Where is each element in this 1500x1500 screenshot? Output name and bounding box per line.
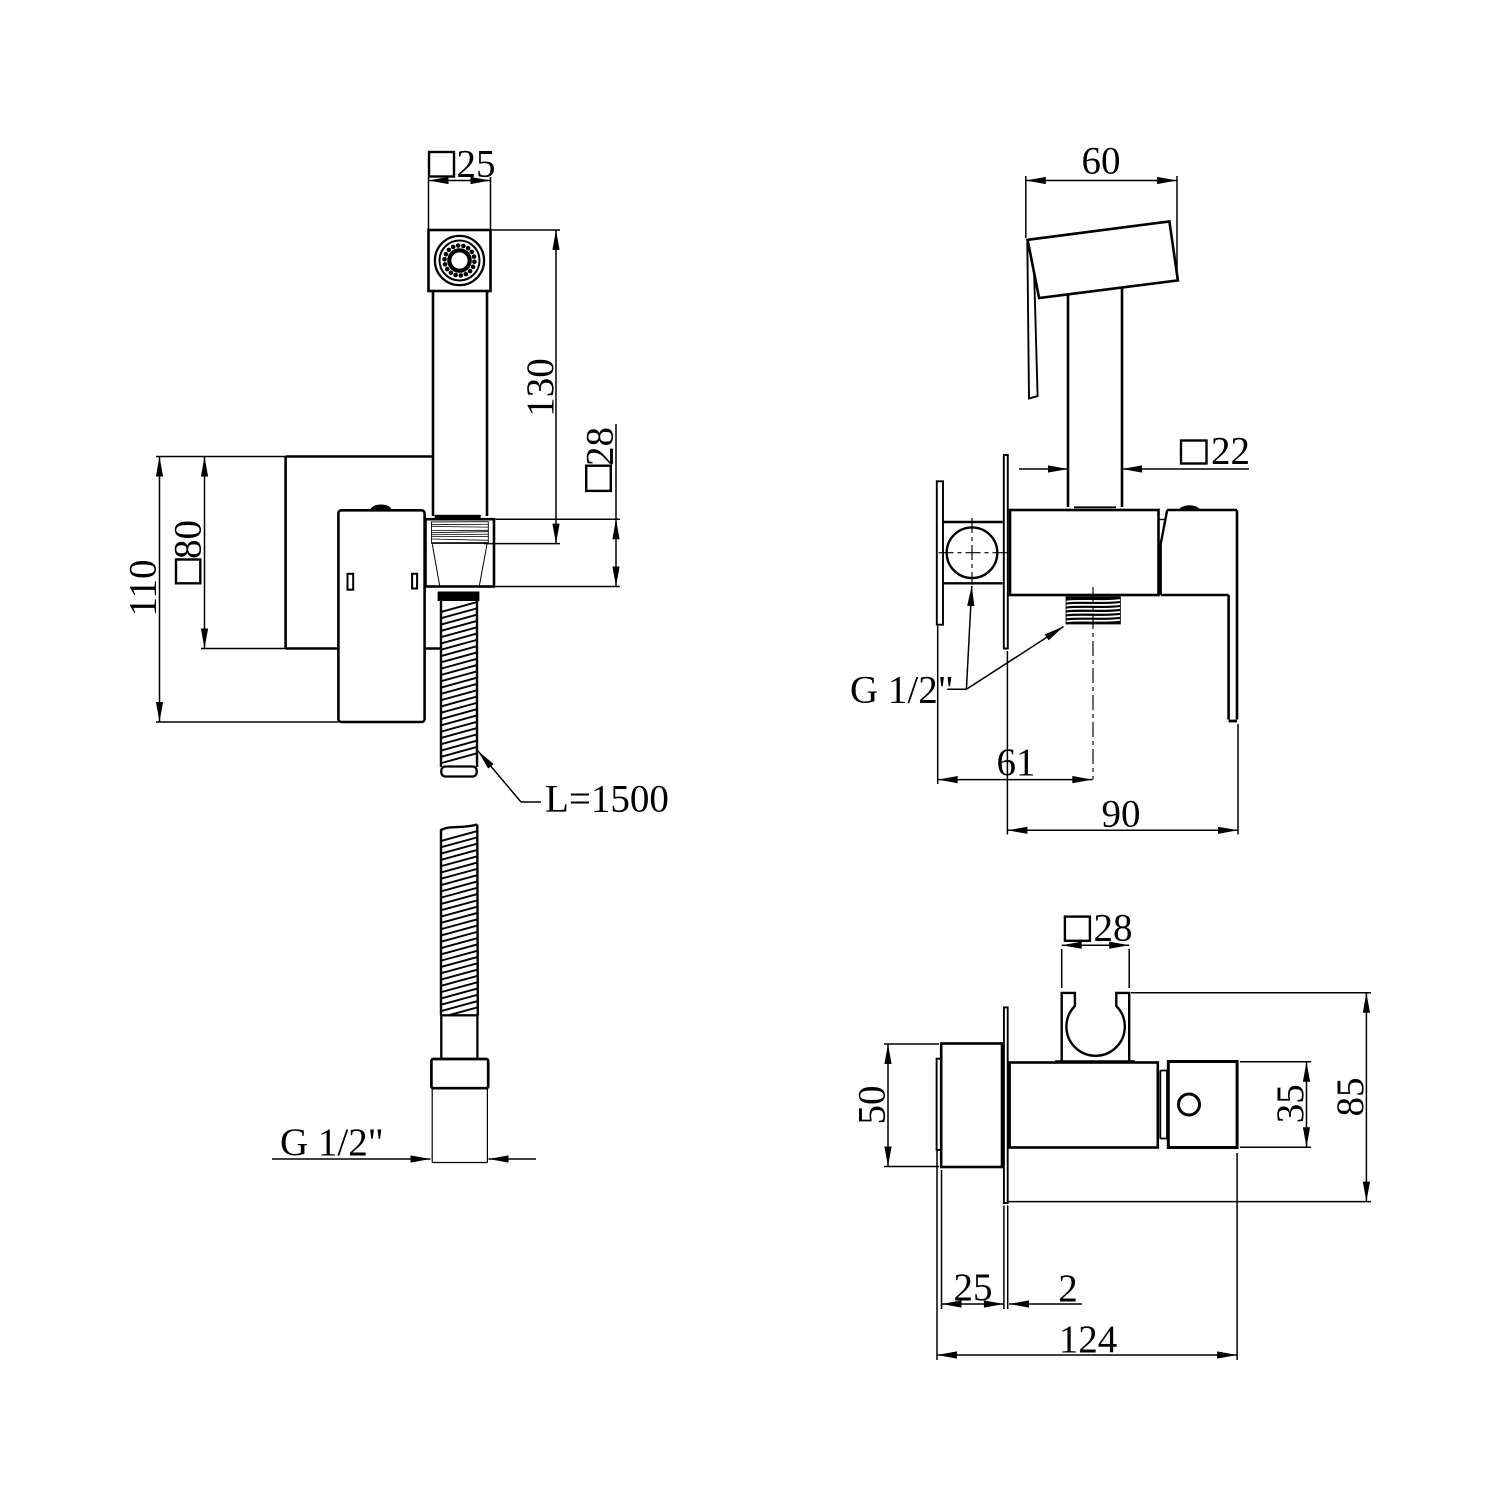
svg-text:124: 124 [1059, 1318, 1118, 1361]
svg-text:61: 61 [997, 741, 1036, 784]
svg-text:80: 80 [166, 520, 209, 559]
svg-text:50: 50 [851, 1086, 894, 1125]
svg-text:90: 90 [1102, 793, 1141, 836]
svg-text:2: 2 [1058, 1267, 1078, 1310]
svg-text:60: 60 [1082, 140, 1121, 183]
svg-text:25: 25 [457, 143, 496, 186]
svg-text:130: 130 [519, 358, 562, 417]
svg-text:L=1500: L=1500 [545, 778, 669, 821]
svg-text:35: 35 [1269, 1084, 1312, 1123]
svg-text:G 1/2": G 1/2" [280, 1121, 384, 1164]
svg-text:22: 22 [1211, 430, 1250, 473]
svg-text:85: 85 [1329, 1078, 1372, 1117]
svg-text:25: 25 [954, 1266, 993, 1309]
svg-text:110: 110 [122, 559, 165, 616]
svg-text:28: 28 [1094, 907, 1133, 950]
svg-text:28: 28 [579, 427, 622, 466]
